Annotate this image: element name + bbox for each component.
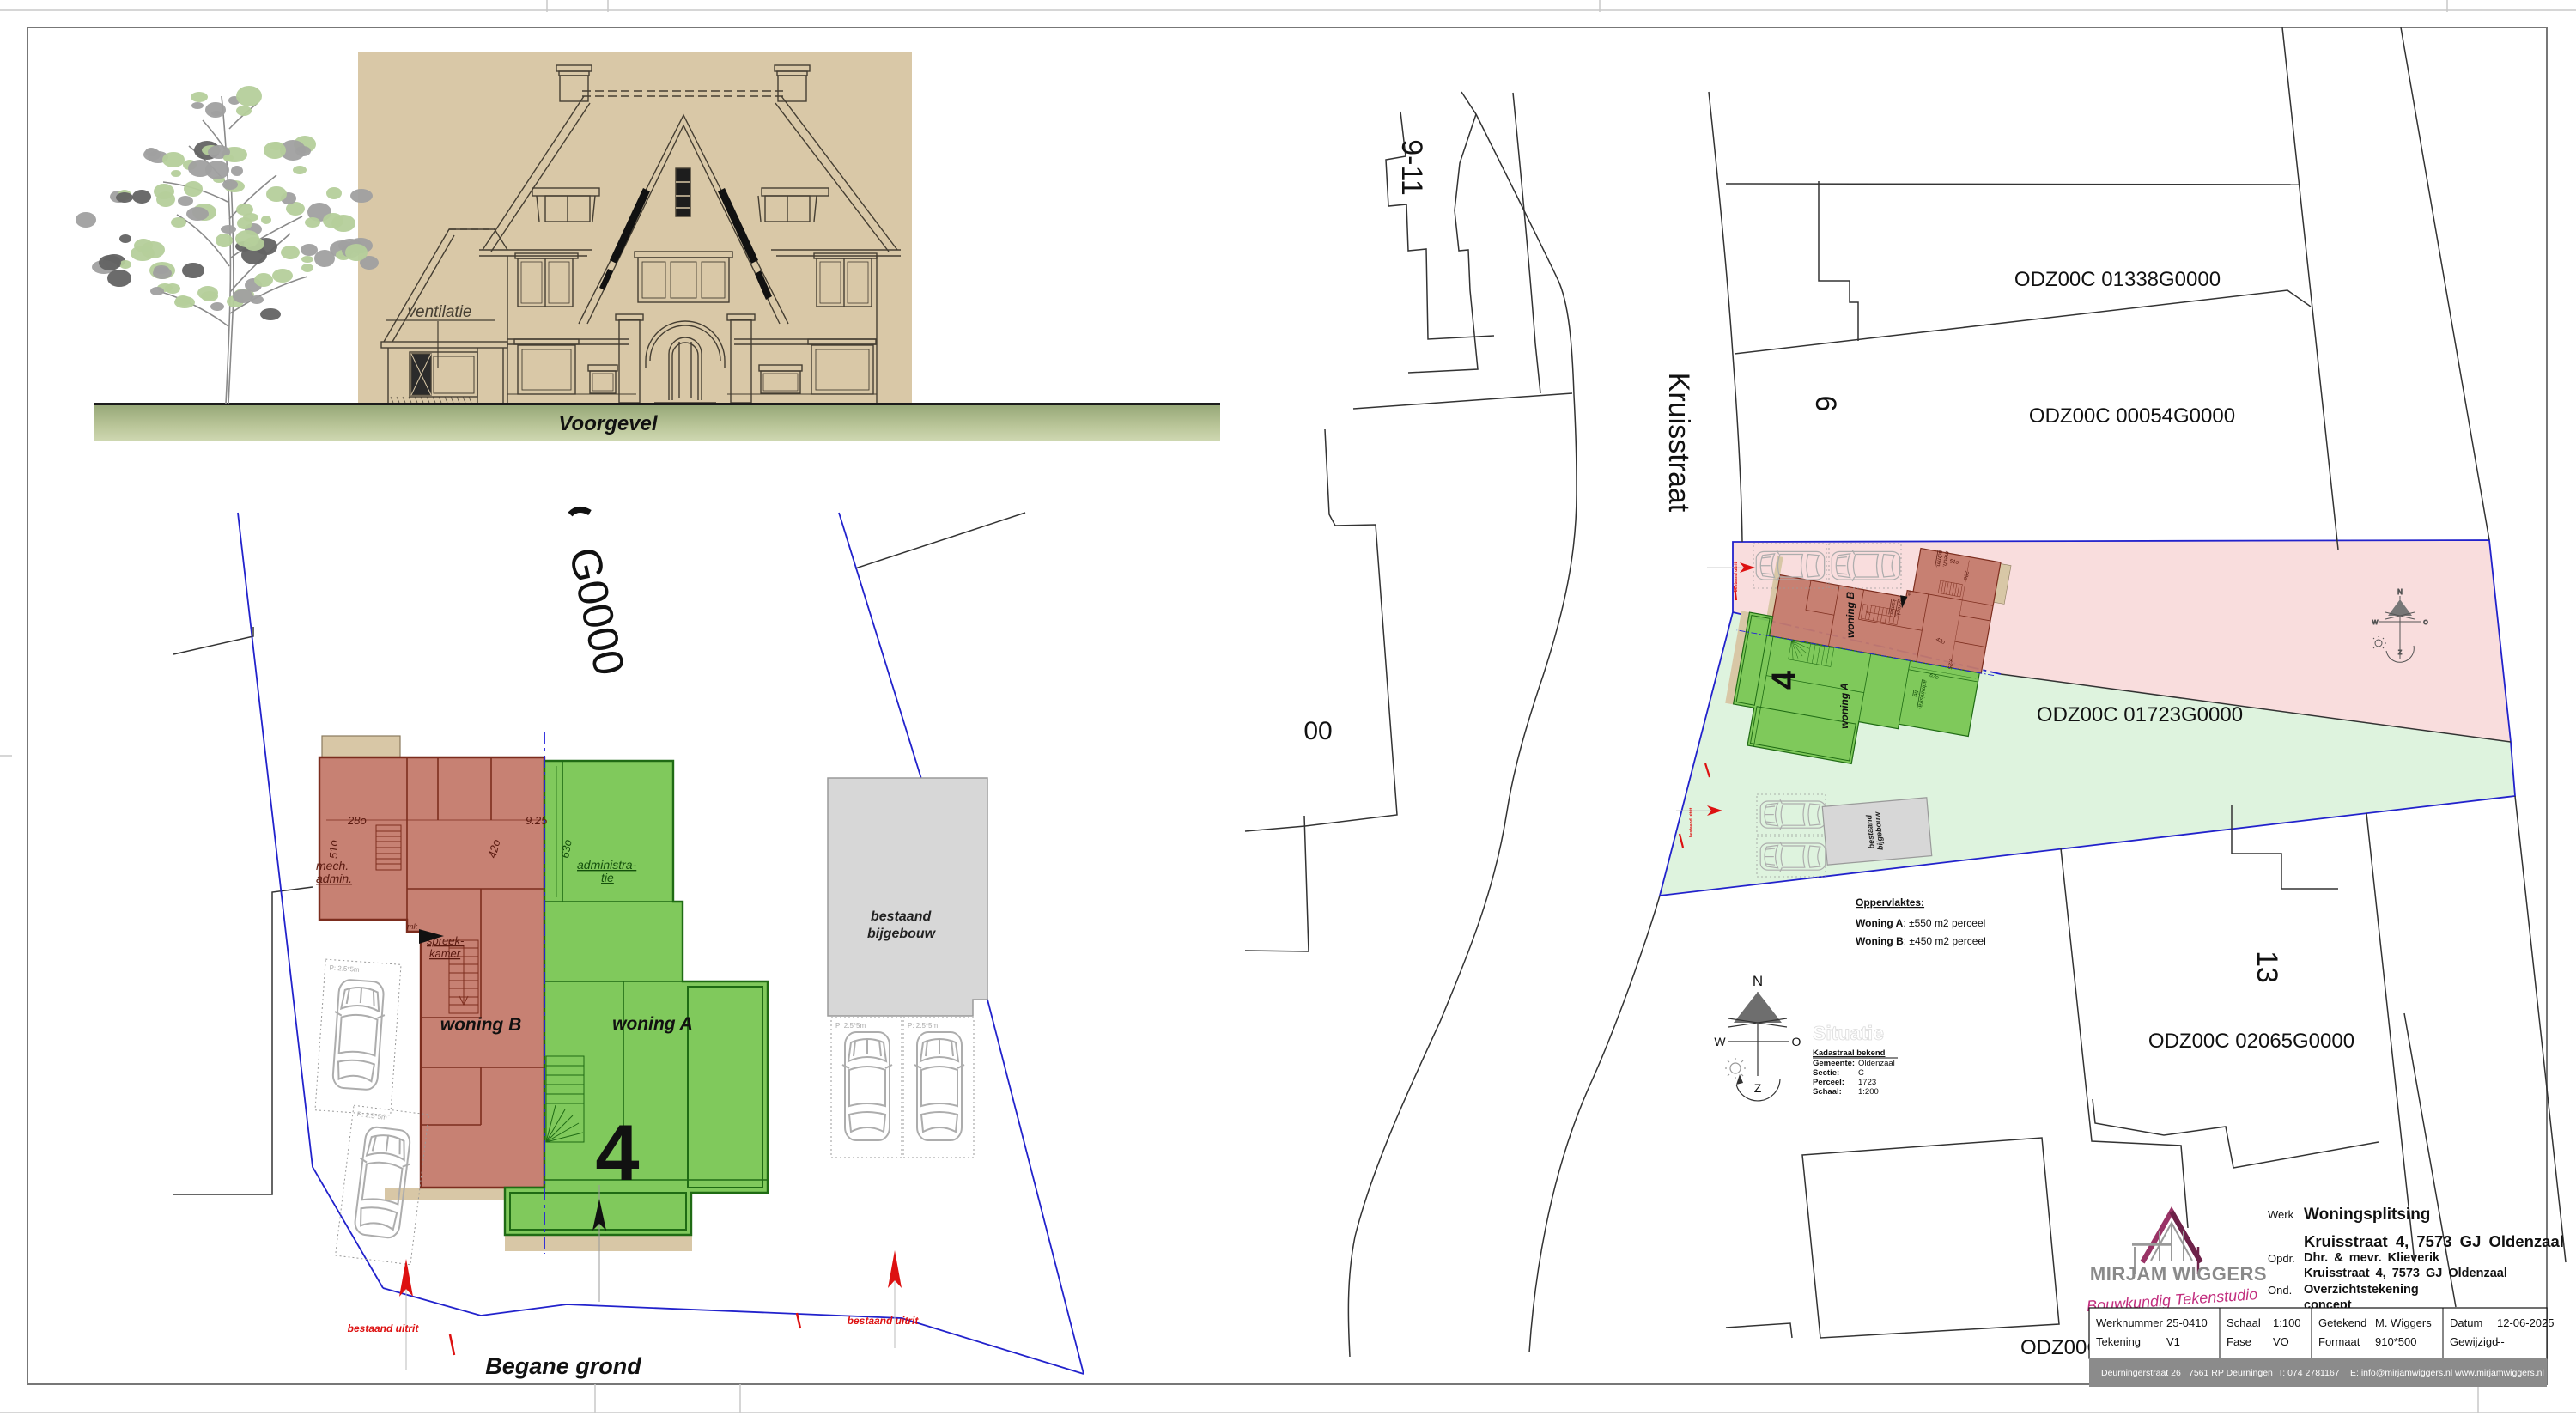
svg-text:4: 4 bbox=[1765, 670, 1803, 690]
svg-text:P: 2.5*5m: P: 2.5*5m bbox=[908, 1022, 938, 1030]
svg-text:O: O bbox=[1792, 1035, 1801, 1048]
svg-text:Oppervlaktes:: Oppervlaktes: bbox=[1856, 896, 1924, 909]
svg-text:Situatie: Situatie bbox=[1813, 1022, 1884, 1044]
svg-text:N: N bbox=[1753, 973, 1763, 989]
svg-text:Formaat: Formaat bbox=[2318, 1335, 2360, 1348]
svg-text:bestaand uitrit: bestaand uitrit bbox=[1689, 807, 1694, 837]
svg-text:Fase: Fase bbox=[2227, 1335, 2251, 1348]
svg-text:Voorgevel: Voorgevel bbox=[558, 412, 658, 435]
svg-text:bestaand: bestaand bbox=[871, 909, 932, 924]
svg-text:ventilatie: ventilatie bbox=[408, 303, 472, 321]
svg-text:N: N bbox=[2397, 588, 2403, 596]
svg-text:Woning B: ±450 m2 perceel: Woning B: ±450 m2 perceel bbox=[1856, 935, 1986, 947]
svg-text:M. Wiggers: M. Wiggers bbox=[2375, 1316, 2432, 1329]
svg-text:Werk: Werk bbox=[2268, 1208, 2294, 1221]
svg-text:1:200: 1:200 bbox=[1858, 1087, 1879, 1097]
svg-text:bestaand uitrit: bestaand uitrit bbox=[348, 1322, 420, 1334]
svg-text:Gemeente:: Gemeente: bbox=[1813, 1059, 1855, 1068]
svg-text:1:100: 1:100 bbox=[2273, 1316, 2301, 1329]
svg-text:ODZ00C 01723G0000: ODZ00C 01723G0000 bbox=[2037, 703, 2243, 726]
svg-text:bestaand uitrit: bestaand uitrit bbox=[848, 1315, 920, 1327]
svg-text:www.mirjamwiggers.nl: www.mirjamwiggers.nl bbox=[2454, 1368, 2544, 1378]
svg-text:Datum: Datum bbox=[2450, 1316, 2482, 1329]
svg-text:P: 2.5*5m: P: 2.5*5m bbox=[835, 1022, 866, 1030]
svg-text:Perceel:: Perceel: bbox=[1813, 1078, 1844, 1087]
svg-text:Opdr.: Opdr. bbox=[2268, 1252, 2295, 1265]
svg-text:W: W bbox=[1714, 1035, 1726, 1048]
svg-text:T: 074 2781167: T: 074 2781167 bbox=[2278, 1368, 2340, 1378]
svg-text:woning B: woning B bbox=[440, 1015, 521, 1035]
svg-text:ODZ00C 00054G0000: ODZ00C 00054G0000 bbox=[2029, 404, 2235, 428]
svg-text:6: 6 bbox=[1809, 396, 1842, 412]
svg-text:Begane grond: Begane grond bbox=[485, 1353, 641, 1379]
svg-text:ODZ00C 01338G0000: ODZ00C 01338G0000 bbox=[2014, 268, 2221, 291]
svg-text:O: O bbox=[2423, 620, 2428, 626]
svg-text:woning A: woning A bbox=[612, 1014, 693, 1034]
svg-text:25-0410: 25-0410 bbox=[2166, 1316, 2208, 1329]
svg-text:--: -- bbox=[2497, 1335, 2505, 1348]
svg-text:E: info@mirjamwiggers.nl: E: info@mirjamwiggers.nl bbox=[2350, 1368, 2452, 1378]
svg-text:C: C bbox=[1858, 1068, 1864, 1078]
svg-text:Kadastraal bekend: Kadastraal bekend bbox=[1813, 1048, 1886, 1058]
svg-text:7561 RP Deurningen: 7561 RP Deurningen bbox=[2189, 1368, 2273, 1378]
svg-text:13: 13 bbox=[2251, 951, 2283, 983]
svg-text:MIRJAM WIGGERS: MIRJAM WIGGERS bbox=[2090, 1263, 2267, 1285]
svg-text:9-11: 9-11 bbox=[1395, 139, 1428, 196]
svg-text:ODZ00C 02065G0000: ODZ00C 02065G0000 bbox=[2148, 1030, 2354, 1053]
svg-text:Dhr. & mevr. Klieverik: Dhr. & mevr. Klieverik bbox=[2304, 1251, 2440, 1265]
svg-text:Sectie:: Sectie: bbox=[1813, 1068, 1839, 1078]
svg-text:Kruisstraat 4, 7573 GJ Oldenza: Kruisstraat 4, 7573 GJ Oldenzaal bbox=[2304, 1267, 2507, 1280]
svg-text:12-06-2025: 12-06-2025 bbox=[2497, 1316, 2555, 1329]
svg-text:Kruisstraat: Kruisstraat bbox=[1662, 373, 1695, 513]
svg-text:1723: 1723 bbox=[1858, 1078, 1876, 1087]
svg-text:Werknummer: Werknummer bbox=[2096, 1316, 2163, 1329]
svg-text:Overzichtstekening: Overzichtstekening bbox=[2304, 1283, 2419, 1297]
svg-text:Tekening: Tekening bbox=[2096, 1335, 2141, 1348]
svg-text:woning A: woning A bbox=[1838, 683, 1850, 729]
svg-text:Getekend: Getekend bbox=[2318, 1316, 2366, 1329]
svg-text:Kruisstraat 4, 7573 GJ Oldenza: Kruisstraat 4, 7573 GJ Oldenzaal bbox=[2304, 1232, 2564, 1250]
svg-text:Oldenzaal: Oldenzaal bbox=[1858, 1059, 1895, 1068]
svg-text:V1: V1 bbox=[2166, 1335, 2180, 1348]
svg-text:910*500: 910*500 bbox=[2375, 1335, 2416, 1348]
svg-text:4: 4 bbox=[595, 1109, 639, 1197]
svg-text:VO: VO bbox=[2273, 1335, 2289, 1348]
svg-text:Z: Z bbox=[2398, 650, 2403, 656]
svg-text:Schaal:: Schaal: bbox=[1813, 1087, 1842, 1097]
svg-text:woning B: woning B bbox=[1844, 592, 1856, 638]
svg-text:Schaal: Schaal bbox=[2227, 1316, 2261, 1329]
svg-text:Gewijzigd: Gewijzigd bbox=[2450, 1335, 2498, 1348]
svg-text:Ond.: Ond. bbox=[2268, 1284, 2292, 1297]
svg-text:Woning A: ±550 m2 perceel: Woning A: ±550 m2 perceel bbox=[1856, 917, 1985, 929]
svg-text:Woningsplitsing: Woningsplitsing bbox=[2304, 1206, 2430, 1224]
svg-text:Z: Z bbox=[1754, 1081, 1762, 1095]
svg-text:Deurningerstraat 26: Deurningerstraat 26 bbox=[2101, 1368, 2181, 1378]
svg-text:bijgebouw: bijgebouw bbox=[867, 927, 937, 941]
svg-text:W: W bbox=[2372, 620, 2379, 626]
svg-text:00: 00 bbox=[1303, 717, 1332, 745]
